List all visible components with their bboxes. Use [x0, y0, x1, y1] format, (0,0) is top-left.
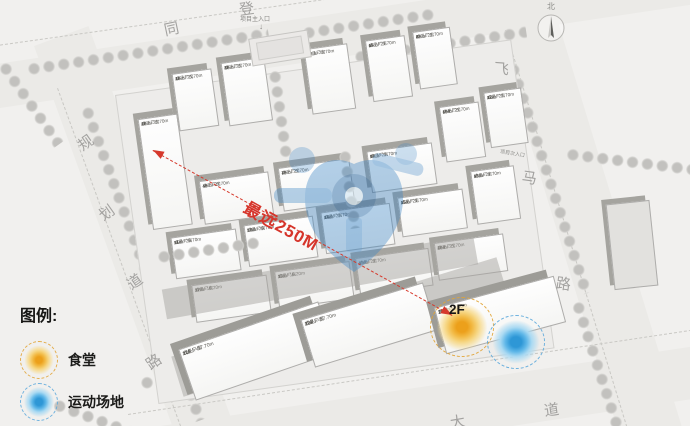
building-label-type: 成品厂房 — [141, 119, 160, 127]
building-block: 10#4F h=21.70m成品厂房 — [439, 101, 486, 162]
building-label-type: 成品厂房 — [224, 63, 243, 71]
building-block: 16#4F h=21.70m成品厂房 — [470, 165, 521, 225]
compass-north-label: 北 — [547, 2, 555, 11]
building-block: 8#4F h=21.70m成品厂房 — [412, 27, 458, 90]
site-plan-canvas: 1#4F h=21.70m成品厂房3#4F h=21.70m成品厂房5#4F h… — [0, 0, 690, 426]
road-name-char: 登 — [238, 0, 256, 20]
legend-title: 图例: — [20, 302, 160, 326]
building-block: 6#4F h=21.70m成品厂房 — [365, 35, 413, 102]
building-label-type: 成品厂房 — [442, 107, 461, 115]
sports-field-highlight — [487, 315, 545, 369]
building-block: 2#4F h=21.70m成品厂房 — [138, 114, 193, 230]
legend-item-canteen: 食堂 — [20, 340, 160, 380]
legend-canteen-label: 食堂 — [68, 350, 96, 370]
building-label-type: 成品厂房 — [416, 32, 435, 40]
sports-dot-icon — [20, 383, 58, 421]
compass-icon: 北 — [536, 0, 566, 48]
building-block: 12#4F h=21.70m成品厂房 — [483, 87, 528, 148]
legend-item-sports: 运动场地 — [20, 382, 160, 422]
main-entrance-arrow-icon: ↓ — [259, 22, 263, 31]
building-label-type: 成品厂房 — [175, 74, 194, 82]
plaza-inner — [256, 36, 304, 61]
building-block — [606, 200, 659, 290]
road-name-char: 路 — [555, 272, 573, 295]
building-label-type: 成品厂房 — [368, 41, 387, 49]
building-label-type: 成品厂房 — [304, 316, 325, 328]
road-name-char: 道 — [543, 398, 561, 421]
building-label-type: 成品厂房 — [487, 93, 506, 101]
building-label-type: 成品厂房 — [473, 171, 492, 179]
canteen-floor-label: 2F — [449, 302, 465, 317]
legend-sports-label: 运动场地 — [68, 392, 124, 412]
building-label-type: 成品厂房 — [182, 345, 203, 358]
building-block: 1#4F h=21.70m成品厂房 — [172, 68, 220, 131]
canteen-dot-icon — [20, 341, 58, 379]
legend: 图例: 食堂 运动场地 — [20, 302, 160, 422]
building-block: 3#4F h=21.70m成品厂房 — [221, 57, 273, 127]
road-name-char: 飞 — [493, 58, 509, 80]
road-name-char: 马 — [521, 166, 539, 189]
watermark-logo — [272, 130, 437, 288]
